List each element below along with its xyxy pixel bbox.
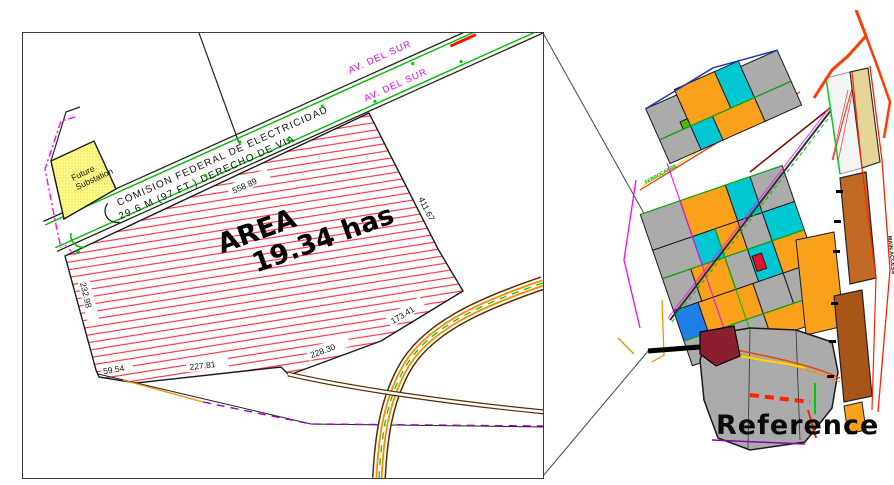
- reference-map: FERROCARRIL: [600, 10, 894, 475]
- drawing-sheet: COMISION FEDERAL DE ELECTRICIDAD 29.6 M …: [0, 0, 894, 485]
- parcel-cluster-north: [642, 41, 802, 164]
- brown-strip-north: [840, 172, 876, 284]
- brown-strip-south: [834, 290, 872, 402]
- red-pavement-marks: [447, 33, 503, 46]
- detail-view-frame: COMISION FEDERAL DE ELECTRICIDAD 29.6 M …: [22, 32, 544, 479]
- main-access-label: MAIN ACCESS: [886, 236, 894, 275]
- west-outline: [624, 180, 640, 328]
- branch-track: [288, 374, 543, 412]
- detail-plan-drawing: COMISION FEDERAL DE ELECTRICIDAD 29.6 M …: [23, 33, 543, 478]
- future-substation: Future Substation: [51, 141, 116, 219]
- orange-tick: [618, 338, 634, 354]
- neighbor-parcel-boundary: [199, 33, 239, 143]
- reference-title: Reference: [716, 410, 879, 441]
